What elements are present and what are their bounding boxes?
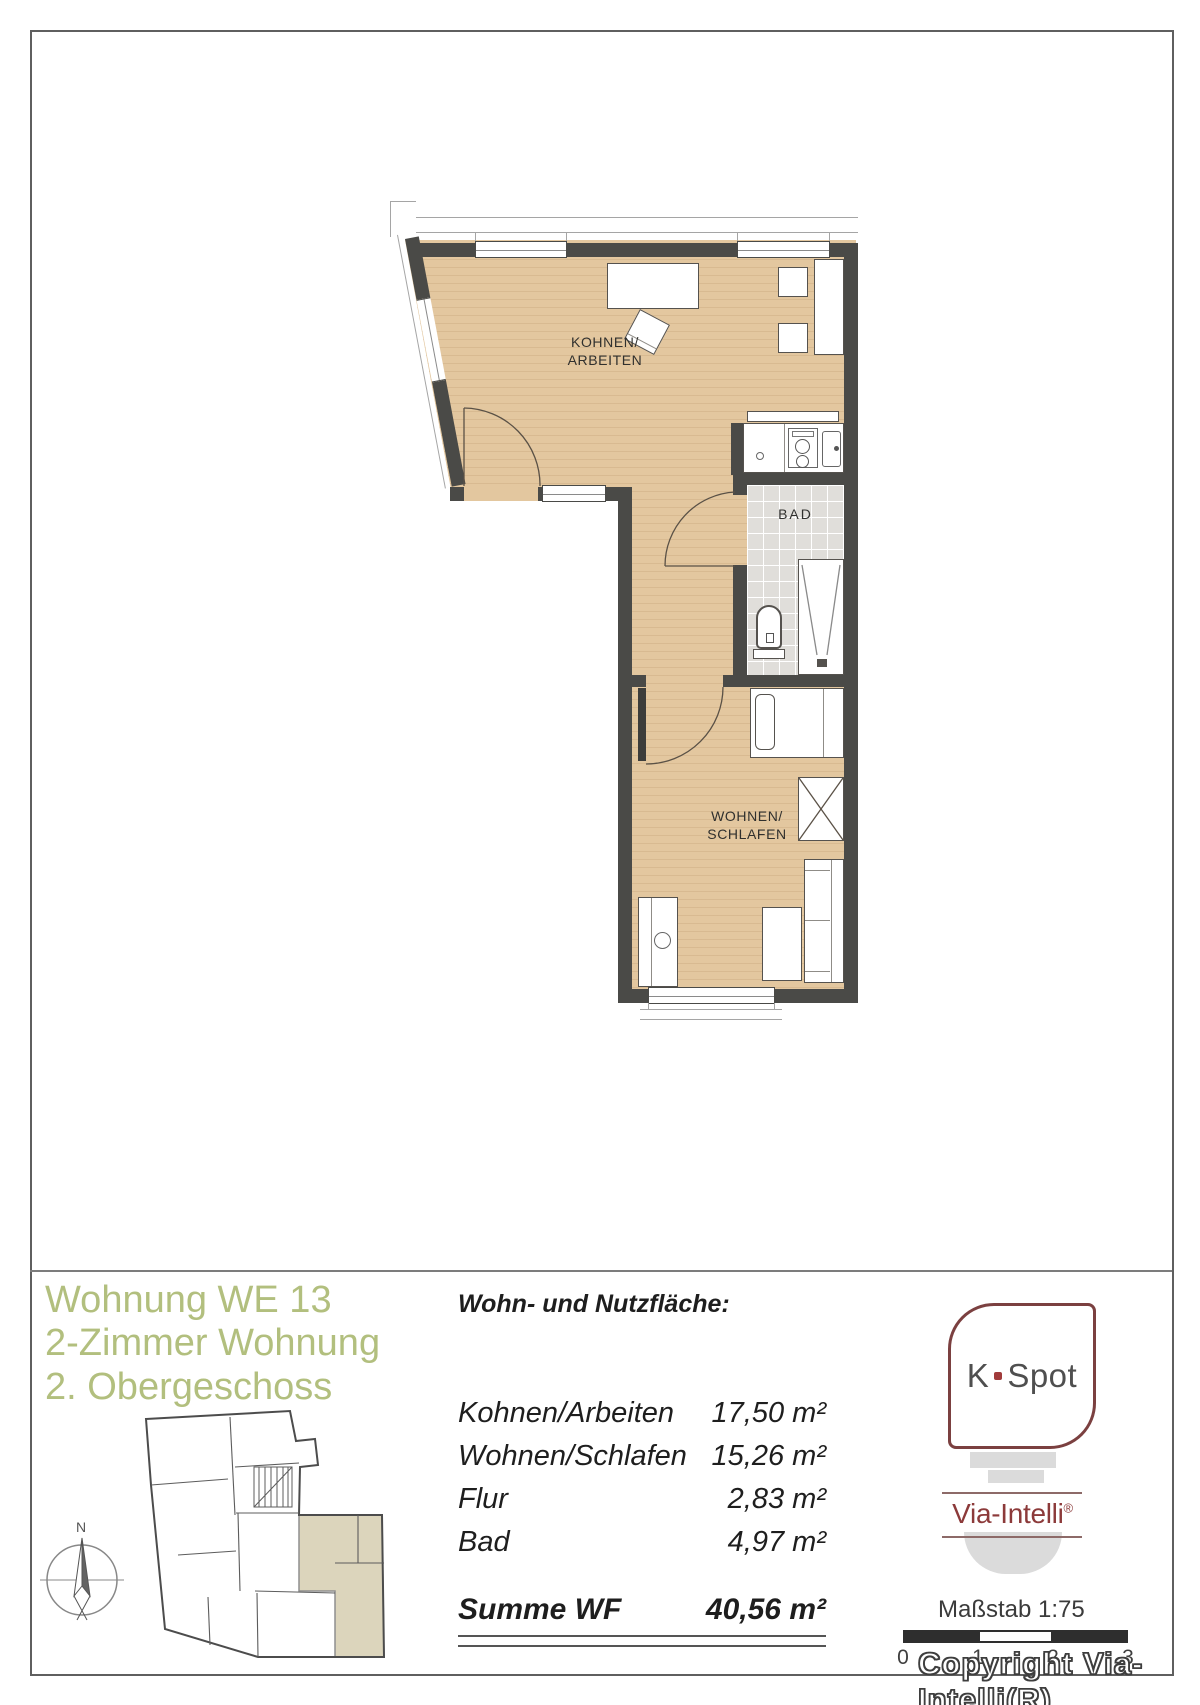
living-room-label: KOHNEN/ ARBEITEN [540, 333, 670, 369]
area-row-value: 17,50 m² [712, 1397, 826, 1440]
compass-tail [77, 1596, 90, 1620]
blanket-fold-line [823, 689, 824, 757]
kspot-logo-spot: Spot [1007, 1357, 1077, 1395]
wall-bath-left-upper [733, 485, 747, 495]
shower-head [817, 659, 827, 667]
apartment-floor-plan: KOHNEN/ ARBEITEN BAD WOHNEN/ SCHLAFEN [390, 195, 860, 1015]
section-divider-line [30, 1270, 1172, 1272]
via-intelli-name: Via-Intelli [952, 1498, 1063, 1529]
via-intelli-logo: Via-Intelli® [930, 1450, 1095, 1580]
kitchen-sink [822, 431, 841, 467]
wall-bath-left-lower [733, 565, 747, 675]
sill-tick [648, 1003, 649, 1009]
area-total-label: Summe WF [458, 1593, 621, 1627]
kitchen-counter [743, 423, 844, 473]
toilet-bowl [756, 605, 782, 649]
area-row-label: Wohnen/Schlafen [458, 1440, 687, 1483]
sofa-cushion-line [805, 920, 830, 921]
sofa-armrest-line [805, 870, 830, 871]
keyplan-highlighted-apartment [299, 1515, 384, 1657]
bedroom-label: WOHNEN/ SCHLAFEN [687, 807, 807, 843]
area-table-rows: Kohnen/Arbeiten 17,50 m² Wohnen/Schlafen… [458, 1397, 826, 1569]
via-rule-top [942, 1492, 1082, 1494]
entrance-door-opening [464, 487, 538, 501]
compass-needle-west [74, 1538, 82, 1596]
shelf-line [651, 898, 652, 986]
sofa [804, 859, 844, 983]
compass-north-label: N [76, 1519, 86, 1535]
wall-right [844, 243, 858, 1003]
toilet-tank [753, 649, 785, 659]
key-plan [118, 1405, 388, 1667]
scale-bar [903, 1630, 1128, 1643]
scale-bar-segment [1053, 1630, 1128, 1643]
keyplan-stairs [254, 1467, 292, 1507]
area-row-label: Kohnen/Arbeiten [458, 1397, 674, 1440]
shower [798, 559, 844, 675]
scale-bar-segment [978, 1630, 1053, 1643]
bed [750, 688, 844, 758]
copyright-watermark: Copyright Via-Intelli(R) [918, 1646, 1200, 1705]
sofa-armrest-line [805, 971, 830, 972]
window-top-right [737, 241, 830, 258]
area-row-label: Bad [458, 1526, 510, 1569]
apartment-title: Wohnung WE 13 2-Zimmer Wohnung 2. Oberge… [45, 1279, 445, 1409]
wall-bath-bottom [723, 675, 858, 687]
window-bottom [648, 987, 775, 1004]
compass-tail [74, 1596, 87, 1620]
area-table-heading: Wohn- und Nutzfläche: [458, 1290, 826, 1319]
scale-bar-segment [903, 1630, 978, 1643]
pillow [755, 694, 775, 750]
bedroom-label-line1: WOHNEN/ [687, 807, 807, 825]
sill-tick [774, 1003, 775, 1009]
bedroom-label-line2: SCHLAFEN [687, 825, 807, 843]
side-table [762, 907, 802, 981]
living-room-label-line2: ARBEITEN [540, 351, 670, 369]
counter-knob [756, 452, 764, 460]
via-intelli-wordmark: Via-Intelli® [930, 1498, 1095, 1530]
via-rule-bottom [942, 1536, 1082, 1538]
area-row-value: 2,83 m² [728, 1483, 826, 1526]
kitchen-shelf [747, 411, 839, 422]
speaker-circle [654, 932, 671, 949]
toilet-detail [766, 633, 774, 643]
parapet-line-outer [416, 217, 858, 218]
sill-line [640, 1009, 782, 1010]
dining-chair [778, 267, 808, 297]
total-double-underline [458, 1635, 826, 1647]
counter-divider [784, 424, 785, 472]
faucet [834, 446, 839, 451]
tv-shelf [638, 897, 678, 987]
kspot-dot-icon [994, 1372, 1002, 1380]
area-row: Kohnen/Arbeiten 17,50 m² [458, 1397, 826, 1440]
area-row: Flur 2,83 m² [458, 1483, 826, 1526]
area-row-label: Flur [458, 1483, 508, 1526]
area-total-value: 40,56 m² [706, 1593, 826, 1627]
wall-corridor-left [618, 487, 632, 1003]
registered-trademark-symbol: ® [1064, 1501, 1073, 1516]
wall-bath-top [733, 473, 858, 485]
title-line-floor: 2. Obergeschoss [45, 1366, 445, 1409]
area-total-row: Summe WF 40,56 m² [458, 1593, 826, 1627]
desk [607, 263, 699, 309]
floor-plan-sheet: KOHNEN/ ARBEITEN BAD WOHNEN/ SCHLAFEN Wo… [0, 0, 1200, 1705]
toilet [752, 605, 788, 659]
cooktop [788, 428, 818, 468]
kspot-logo-k: K [967, 1357, 990, 1395]
sofa-back-line [831, 860, 832, 982]
compass-needle-east [82, 1538, 90, 1596]
title-line-unit: Wohnung WE 13 [45, 1279, 445, 1322]
via-watermark-shape [988, 1470, 1044, 1483]
via-watermark-shape [964, 1532, 1062, 1574]
kspot-logo: K Spot [948, 1303, 1096, 1449]
area-table: Wohn- und Nutzfläche: Kohnen/Arbeiten 17… [458, 1290, 826, 1647]
scale-tick-0: 0 [893, 1646, 913, 1670]
living-room-label-line1: KOHNEN/ [540, 333, 670, 351]
area-row: Wohnen/Schlafen 15,26 m² [458, 1440, 826, 1483]
scale-label: Maßstab 1:75 [938, 1596, 1085, 1624]
cooktop-controls [792, 431, 814, 437]
bath-label: BAD [747, 505, 844, 523]
wall-bath-bottom-stub [632, 675, 646, 687]
title-line-type: 2-Zimmer Wohnung [45, 1322, 445, 1365]
dining-chair [778, 323, 808, 353]
parapet-line-inner [416, 232, 858, 233]
north-arrow-icon: N [40, 1516, 124, 1628]
wall-kitchen-stub [731, 423, 743, 475]
parapet-jog-line [390, 201, 416, 202]
window-top-left [475, 241, 567, 258]
burner [795, 439, 810, 454]
area-row-value: 15,26 m² [712, 1440, 826, 1483]
parapet-jog-line [390, 201, 391, 237]
dining-table [814, 259, 844, 355]
burner [796, 455, 809, 468]
via-watermark-shape [970, 1452, 1056, 1468]
window-living-bottom [542, 485, 606, 502]
area-row-value: 4,97 m² [728, 1526, 826, 1569]
sill-line [640, 1019, 782, 1020]
area-row: Bad 4,97 m² [458, 1526, 826, 1569]
